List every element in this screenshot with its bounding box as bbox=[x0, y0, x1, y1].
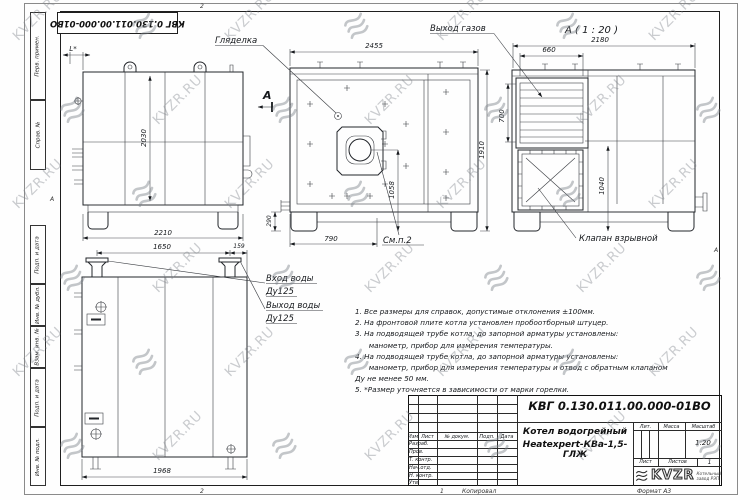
sight-glass-label: Гляделка bbox=[215, 36, 257, 46]
dim-660: 660 bbox=[542, 46, 556, 54]
note-line: 4. На подводящей трубе котла, до запорно… bbox=[355, 351, 657, 362]
row-tkontr: Т. контр. bbox=[409, 457, 432, 463]
dim-2210: 2210 bbox=[154, 229, 172, 237]
dim-2030: 2030 bbox=[140, 129, 148, 147]
burner-plate bbox=[337, 127, 383, 175]
sheets-label: Листов bbox=[658, 459, 697, 465]
scale-value: 1:20 bbox=[685, 439, 721, 447]
doc-number: КВГ 0.130.011.00.000-01ВО bbox=[517, 399, 722, 413]
dim-1910: 1910 bbox=[478, 141, 486, 159]
water-inlet-dn-label: Ду125 bbox=[265, 287, 294, 297]
sheets-value: 1 bbox=[697, 459, 722, 466]
dim-l-star: L* bbox=[69, 45, 77, 53]
drawing-title-line1: Котел водогрейный bbox=[518, 427, 632, 437]
burner-opening bbox=[349, 139, 371, 161]
lit-label: Лит. bbox=[633, 424, 658, 430]
dim-1058: 1058 bbox=[388, 181, 396, 199]
dim-2180: 2180 bbox=[591, 36, 609, 44]
note-line: манометр, прибор для измерения температу… bbox=[355, 362, 657, 373]
note-line: 1. Все размеры для справок, допустимые о… bbox=[355, 306, 657, 317]
mass-label: Масса bbox=[658, 424, 685, 430]
row-nkontr: Н. контр. bbox=[409, 473, 433, 479]
note-line: 2. На фронтовой плите котла установлен п… bbox=[355, 317, 657, 328]
row-utv: Утв. bbox=[409, 480, 420, 486]
dim-700: 700 bbox=[498, 109, 506, 123]
wave-icon bbox=[635, 468, 649, 484]
dim-790: 790 bbox=[324, 235, 338, 243]
water-outlet-pipe bbox=[221, 262, 239, 277]
scale-label: Масштаб bbox=[685, 424, 722, 430]
drawing-title-line2: Heatexpert-КВа-1,5-ГЛЖ bbox=[518, 440, 632, 460]
row-prov: Пров. bbox=[409, 449, 424, 455]
dim-1650: 1650 bbox=[153, 243, 171, 251]
view-side: 2030 2210 L* А bbox=[63, 45, 273, 241]
water-inlet-pipe bbox=[88, 262, 106, 277]
note-line: Ду не менее 50 мм. bbox=[355, 373, 657, 384]
dim-1040: 1040 bbox=[598, 177, 606, 195]
view-detail-a: А ( 1 : 20 ) 2180 660 bbox=[498, 25, 707, 244]
technical-notes: 1. Все размеры для справок, допустимые о… bbox=[355, 306, 657, 396]
col-izm: Изм. bbox=[408, 434, 418, 440]
lifting-lugs bbox=[124, 62, 206, 72]
row-razrab: Разраб. bbox=[409, 441, 429, 447]
note-line: манометр, прибор для измерения температу… bbox=[355, 340, 657, 351]
col-list: Лист bbox=[418, 434, 437, 440]
water-inlet-label: Вход воды bbox=[266, 274, 314, 284]
row-nachotd: Нач.отд. bbox=[409, 465, 431, 471]
dim-159: 159 bbox=[233, 243, 245, 250]
view-top: 1650 159 1968 Вход воды Ду125 Выход воды… bbox=[74, 243, 323, 480]
note-line: 3. На подводящей трубе котла, до запорно… bbox=[355, 328, 657, 339]
logo-text: KVZR bbox=[651, 469, 695, 482]
drawing-sheet: Перв. примен. Справ. № Подп. и дата Инв.… bbox=[0, 0, 750, 500]
water-outlet-dn-label: Ду125 bbox=[265, 314, 294, 324]
col-doc: № докум. bbox=[437, 434, 477, 440]
dim-290: 290 bbox=[266, 215, 273, 227]
view-front: 2455 1910 1058 790 290 См.п.2 Гляделка В… bbox=[215, 24, 542, 247]
logo-subtitle-2: завод РЭП bbox=[697, 476, 721, 481]
kvzr-logo: KVZR Котельный завод РЭП bbox=[635, 466, 721, 485]
sheet-label: Лист bbox=[633, 459, 658, 465]
col-date: Дата bbox=[497, 434, 517, 440]
bottom-zone-number: 1 bbox=[440, 488, 444, 495]
explosion-valve-label: Клапан взрывной bbox=[579, 234, 658, 244]
section-a-letter: А bbox=[262, 89, 272, 102]
dim-1968: 1968 bbox=[153, 467, 171, 475]
copied-label: Копировал bbox=[462, 488, 496, 495]
gas-outlet-label: Выход газов bbox=[430, 24, 486, 34]
dim-2455: 2455 bbox=[365, 42, 383, 50]
col-sign: Подп. bbox=[477, 434, 497, 440]
gas-outlet-grille bbox=[516, 78, 588, 148]
water-outlet-label: Выход воды bbox=[266, 301, 320, 311]
note-line: 5. *Размер уточняется в зависимости от м… bbox=[355, 384, 657, 395]
detail-a-title: А ( 1 : 20 ) bbox=[564, 25, 618, 36]
see-note-2-label: См.п.2 bbox=[383, 236, 412, 246]
format-label: Формат А3 bbox=[637, 488, 671, 495]
